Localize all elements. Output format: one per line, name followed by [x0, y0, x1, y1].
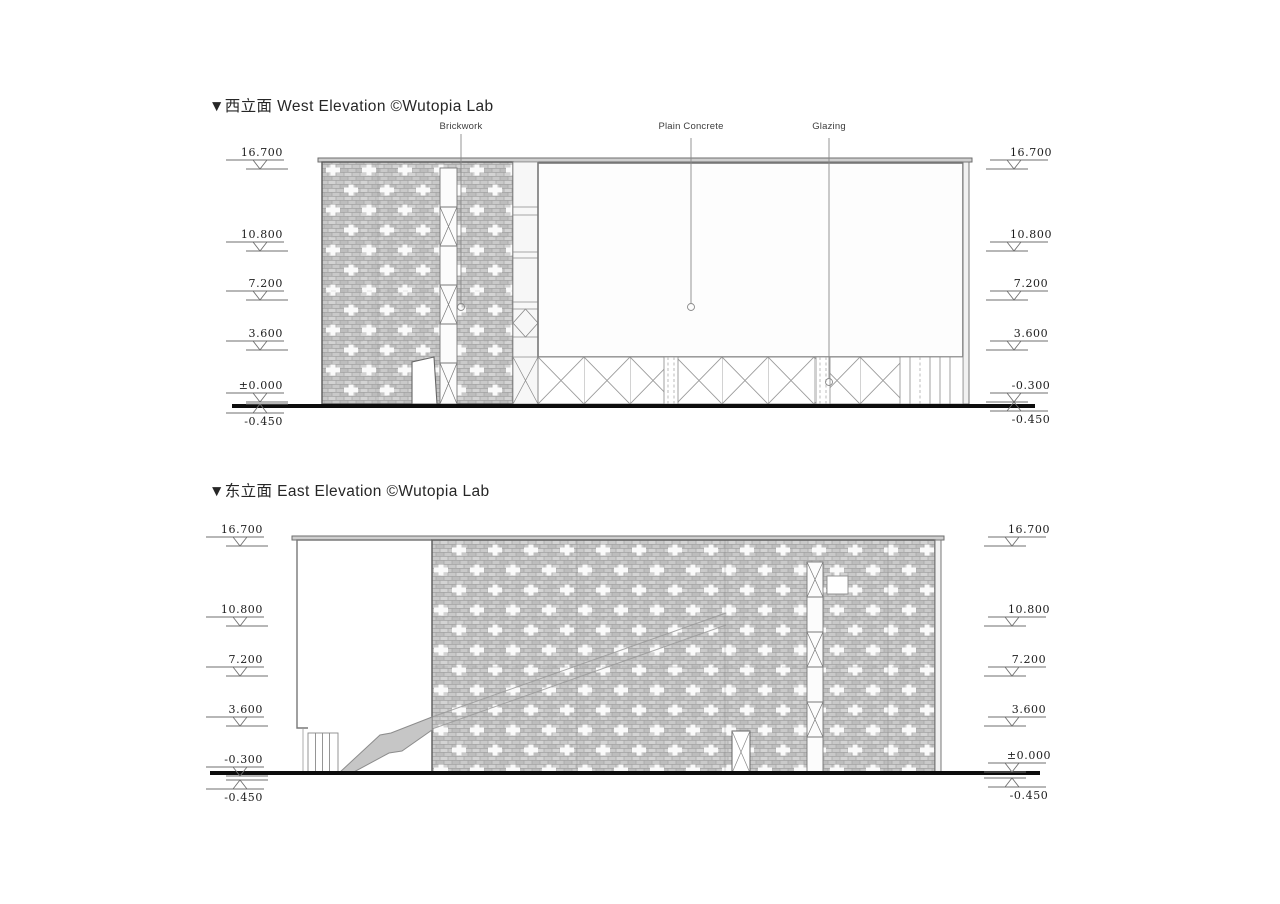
level-label: 7.200 — [1008, 277, 1054, 290]
east-window-strip — [807, 562, 823, 773]
level-label: -0.300 — [207, 753, 263, 766]
west-elevation-drawing — [232, 134, 1035, 408]
east-ground-line — [210, 771, 1040, 775]
level-label: 16.700 — [207, 523, 263, 536]
level-label: 16.700 — [1006, 523, 1052, 536]
east-door — [732, 731, 750, 773]
level-label: 16.700 — [1008, 146, 1054, 159]
east-stair — [339, 717, 432, 773]
east-brick-wall — [432, 540, 935, 773]
west-right-edge — [963, 162, 969, 404]
elevation-sheet: ▼西立面 West Elevation ©Wutopia Lab ▼东立面 Ea… — [0, 0, 1280, 904]
level-label: 10.800 — [207, 603, 263, 616]
level-label: 10.800 — [1008, 228, 1054, 241]
level-label: ±0.000 — [227, 379, 283, 392]
level-label: 3.600 — [1006, 703, 1052, 716]
label-brickwork: Brickwork — [420, 121, 502, 132]
east-right-edge — [935, 540, 941, 773]
label-glazing: Glazing — [799, 121, 859, 132]
west-glazing-band — [538, 357, 963, 404]
west-middle-strip — [513, 162, 538, 404]
level-label: 3.600 — [227, 327, 283, 340]
level-label: 3.600 — [1008, 327, 1054, 340]
east-title: ▼东立面 East Elevation ©Wutopia Lab — [209, 479, 490, 501]
west-title: ▼西立面 West Elevation ©Wutopia Lab — [209, 94, 494, 116]
level-label: 7.200 — [1006, 653, 1052, 666]
west-concrete-panel — [538, 163, 963, 357]
east-railing — [308, 733, 338, 773]
label-plain-concrete: Plain Concrete — [641, 121, 741, 132]
level-label: 10.800 — [227, 228, 283, 241]
level-label: 7.200 — [227, 277, 283, 290]
level-label: 3.600 — [207, 703, 263, 716]
west-door — [412, 357, 437, 404]
west-window-strip — [440, 168, 457, 404]
level-label: -0.300 — [1008, 379, 1054, 392]
west-ground-line — [232, 404, 1035, 408]
level-label: -0.450 — [207, 791, 263, 804]
level-label: 10.800 — [1006, 603, 1052, 616]
elevation-linework — [0, 0, 1280, 904]
east-elevation-drawing — [210, 536, 1040, 775]
level-label: ±0.000 — [1006, 749, 1052, 762]
east-small-window — [827, 576, 848, 594]
level-label: 16.700 — [227, 146, 283, 159]
level-label: -0.450 — [1008, 413, 1054, 426]
level-label: -0.450 — [1006, 789, 1052, 802]
level-label: -0.450 — [227, 415, 283, 428]
level-label: 7.200 — [207, 653, 263, 666]
